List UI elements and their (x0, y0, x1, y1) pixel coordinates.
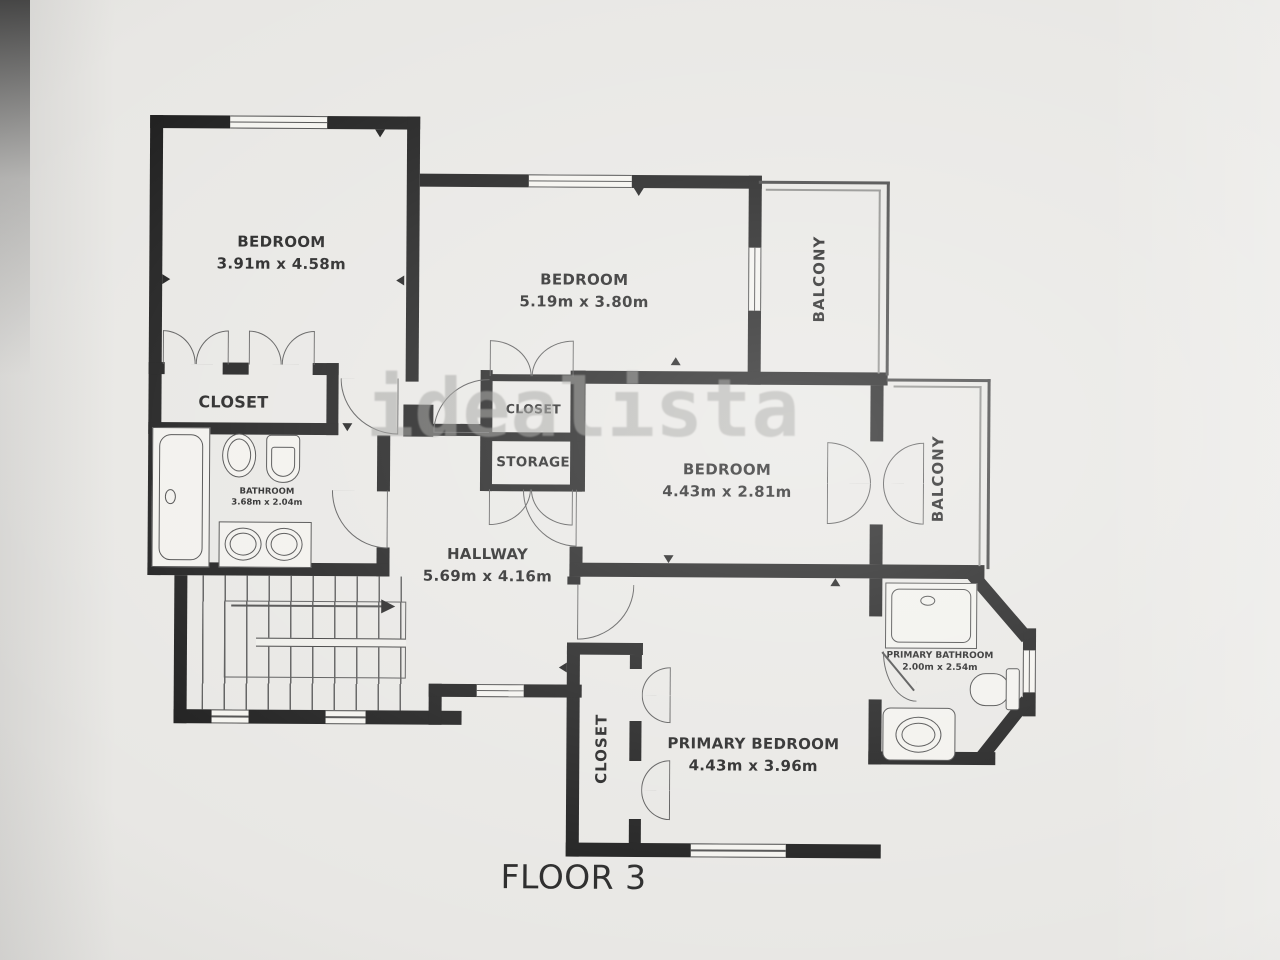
sink-basin-inner (271, 533, 298, 556)
balcony-wall (887, 379, 991, 383)
window (212, 709, 249, 723)
room-label-primary-bedroom: PRIMARY BEDROOM 4.43m x 3.96m (623, 733, 883, 778)
window (1023, 650, 1036, 692)
room-name: BEDROOM (469, 269, 699, 292)
balcony-inner-line (978, 386, 981, 566)
room-name: BEDROOM (166, 231, 396, 254)
window (477, 684, 524, 697)
closet-door-swing (282, 331, 315, 365)
wall-marker (162, 274, 170, 284)
wall-marker (396, 276, 404, 286)
room-label-bathroom: BATHROOM 3.68m x 2.04m (212, 486, 322, 509)
wall (630, 655, 642, 669)
wall (566, 643, 580, 857)
shower-drain (920, 596, 935, 606)
closet-door-swing (196, 330, 229, 364)
toilet (970, 673, 1010, 706)
room-label-hallway: HALLWAY 5.69m x 4.16m (372, 543, 602, 588)
room-dims: 4.43m x 3.96m (623, 755, 883, 778)
sink-basin-inner (901, 723, 935, 747)
label-balcony-right: BALCONY (928, 424, 949, 534)
balcony-door-swing (883, 483, 924, 524)
closet-door-swing (641, 790, 670, 820)
room-name: HALLWAY (372, 543, 602, 566)
sink-basin-inner (230, 532, 257, 555)
door-swing (577, 585, 634, 640)
window (691, 843, 786, 858)
balcony-wall (759, 181, 890, 185)
window (748, 248, 761, 311)
stair-rail (256, 638, 406, 648)
closet-door-swing (249, 331, 282, 365)
idealista-watermark: idealista (366, 362, 799, 455)
balcony-wall (986, 379, 990, 569)
room-dims: 2.00m x 2.54m (882, 662, 998, 674)
window (230, 115, 327, 129)
balcony-inner-line (766, 189, 881, 192)
room-label-bedroom-1: BEDROOM 3.91m x 4.58m (166, 231, 396, 276)
door-swing (332, 490, 388, 548)
room-name: BEDROOM (612, 459, 842, 482)
closet-door-swing (642, 695, 671, 723)
bathtub-drain (165, 489, 176, 504)
wall-marker (634, 188, 644, 196)
wall-marker (663, 555, 673, 563)
toilet-bowl (227, 438, 251, 471)
room-dims: 4.43m x 2.81m (612, 481, 842, 504)
balcony-wall (886, 182, 890, 376)
floor-title: FLOOR 3 (500, 857, 646, 897)
wall-marker (342, 423, 352, 431)
window (326, 710, 366, 724)
room-name: PRIMARY BATHROOM (882, 650, 998, 662)
floorplan: BEDROOM 3.91m x 4.58m BEDROOM 5.19m x 3.… (0, 0, 1280, 960)
wall (869, 524, 882, 564)
room-dims: 3.68m x 2.04m (212, 497, 322, 509)
label-storage: STORAGE (483, 453, 583, 473)
room-dims: 5.69m x 4.16m (372, 565, 602, 588)
label-closet-1: CLOSET (168, 390, 298, 414)
balcony-inner-line (878, 189, 881, 373)
label-balcony-top: BALCONY (809, 224, 830, 334)
wall (174, 575, 188, 723)
wall (869, 578, 882, 616)
wall (406, 117, 421, 382)
wall (569, 563, 984, 580)
balcony-door-swing (883, 442, 924, 483)
label-closet-primary: CLOSET (591, 694, 612, 804)
closet-door-swing (163, 330, 196, 364)
stair-direction-arrow (381, 599, 395, 613)
room-label-bedroom-2: BEDROOM 5.19m x 3.80m (469, 269, 699, 314)
closet-door-swing (642, 667, 671, 695)
wall (870, 385, 883, 441)
wall-marker (559, 663, 567, 673)
room-dims: 5.19m x 3.80m (469, 291, 699, 314)
wall-marker (375, 129, 385, 137)
balcony-inner-line (894, 386, 982, 389)
toilet-tank (1006, 668, 1020, 710)
room-label-bedroom-3: BEDROOM 4.43m x 2.81m (612, 459, 842, 504)
wall (629, 819, 641, 845)
floorplan-photo: BEDROOM 3.91m x 4.58m BEDROOM 5.19m x 3.… (0, 0, 1280, 960)
room-dims: 3.91m x 4.58m (166, 253, 396, 276)
room-name: BATHROOM (212, 486, 322, 498)
wall-marker (830, 578, 840, 586)
bidet-bowl (271, 447, 295, 477)
storage-door-swing (489, 489, 531, 525)
window (529, 174, 632, 188)
room-label-primary-bathroom: PRIMARY BATHROOM 2.00m x 2.54m (882, 650, 998, 674)
room-name: PRIMARY BEDROOM (623, 733, 883, 756)
